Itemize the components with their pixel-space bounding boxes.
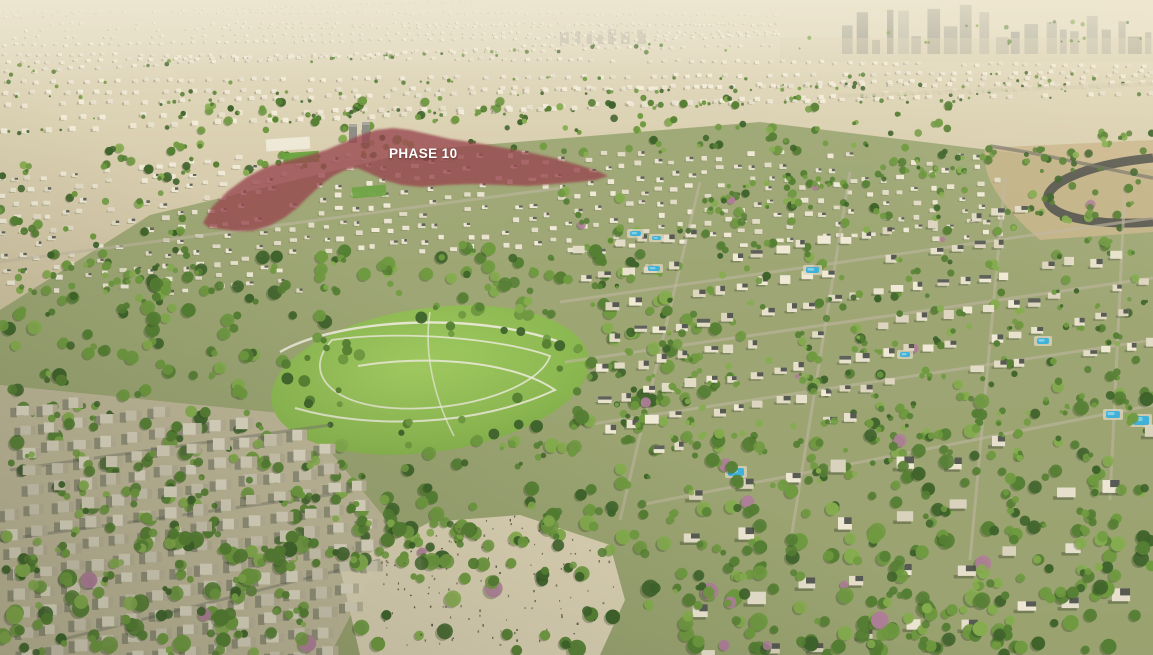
masterplan-aerial-view: PHASE 10 (0, 0, 1153, 655)
phase-10-label[interactable]: PHASE 10 (389, 146, 457, 161)
lighting-vignette (0, 0, 1153, 655)
masterplan-scene (0, 0, 1153, 655)
